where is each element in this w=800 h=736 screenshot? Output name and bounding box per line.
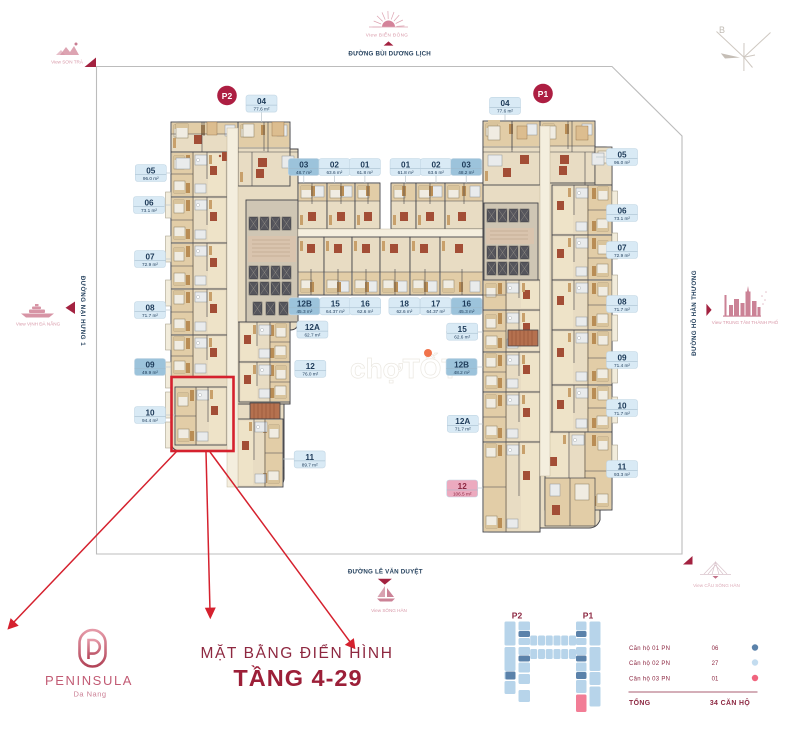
svg-text:TỔNG: TỔNG: [629, 698, 651, 707]
svg-text:04: 04: [500, 99, 510, 108]
svg-text:71.4 m²: 71.4 m²: [614, 363, 630, 368]
svg-text:04: 04: [257, 97, 267, 106]
svg-text:11: 11: [305, 453, 314, 462]
svg-text:Căn hộ 01 PN: Căn hộ 01 PN: [629, 646, 670, 652]
svg-text:11: 11: [618, 462, 627, 471]
svg-text:63.6 m²: 63.6 m²: [326, 170, 342, 175]
svg-text:17: 17: [431, 300, 441, 309]
svg-text:05: 05: [617, 150, 627, 159]
svg-text:View SƠN TRÀ: View SƠN TRÀ: [51, 59, 84, 65]
svg-text:12: 12: [306, 362, 316, 371]
svg-text:View SÔNG HÀN: View SÔNG HÀN: [371, 607, 407, 613]
svg-text:Căn hộ 02 PN: Căn hộ 02 PN: [629, 661, 670, 667]
svg-text:96.0 m²: 96.0 m²: [143, 176, 159, 181]
svg-text:ĐƯỜNG BÙI DƯƠNG LỊCH: ĐƯỜNG BÙI DƯƠNG LỊCH: [348, 50, 431, 58]
svg-text:71.7 m²: 71.7 m²: [455, 427, 471, 432]
svg-text:12: 12: [458, 482, 468, 491]
svg-text:Da Nang: Da Nang: [73, 690, 106, 699]
svg-text:08: 08: [145, 303, 155, 312]
svg-text:10: 10: [617, 401, 627, 410]
svg-text:73.1 m²: 73.1 m²: [614, 216, 630, 221]
svg-text:12B: 12B: [454, 360, 469, 369]
svg-text:63.6 m²: 63.6 m²: [428, 170, 444, 175]
svg-text:Căn hộ 03 PN: Căn hộ 03 PN: [629, 677, 670, 683]
svg-text:96.0 m²: 96.0 m²: [614, 160, 630, 165]
svg-text:71.7 m²: 71.7 m²: [142, 313, 158, 318]
svg-text:71.7 m²: 71.7 m²: [614, 411, 630, 416]
svg-text:01: 01: [712, 677, 719, 683]
svg-text:72.9 m²: 72.9 m²: [142, 262, 158, 267]
svg-text:93.3 m²: 93.3 m²: [614, 472, 630, 477]
svg-text:64.37 m²: 64.37 m²: [426, 309, 445, 314]
svg-text:05: 05: [146, 166, 156, 175]
svg-text:73.1 m²: 73.1 m²: [141, 208, 157, 213]
svg-text:ĐƯỜNG HỒ HÀN THƯƠNG: ĐƯỜNG HỒ HÀN THƯƠNG: [690, 270, 698, 356]
svg-text:06: 06: [144, 198, 154, 207]
svg-text:P2: P2: [512, 611, 523, 621]
svg-text:07: 07: [617, 243, 627, 252]
svg-text:View TRUNG TÂM THÀNH PHỐ: View TRUNG TÂM THÀNH PHỐ: [712, 319, 779, 325]
svg-text:62.6 m²: 62.6 m²: [454, 335, 470, 340]
svg-text:15: 15: [331, 300, 341, 309]
svg-text:12A: 12A: [305, 323, 320, 332]
svg-text:62.6 m²: 62.6 m²: [357, 309, 373, 314]
svg-text:PENINSULA: PENINSULA: [45, 673, 133, 688]
svg-text:49.9 m²: 49.9 m²: [142, 370, 158, 375]
svg-text:06: 06: [617, 206, 627, 215]
svg-text:48.2 m²: 48.2 m²: [458, 170, 474, 175]
svg-text:76.0 m²: 76.0 m²: [302, 372, 318, 377]
svg-text:View CẦU SÔNG HÀN: View CẦU SÔNG HÀN: [693, 582, 740, 588]
svg-text:94.4 m²: 94.4 m²: [142, 418, 158, 423]
svg-text:77.6 m²: 77.6 m²: [254, 107, 270, 112]
svg-text:18: 18: [400, 300, 410, 309]
svg-text:01: 01: [360, 160, 370, 169]
svg-text:chợTỐT: chợTỐT: [350, 352, 459, 384]
svg-text:62.7 m²: 62.7 m²: [304, 333, 320, 338]
svg-text:10: 10: [145, 408, 155, 417]
svg-text:ĐƯỜNG LÊ VĂN DUYỆT: ĐƯỜNG LÊ VĂN DUYỆT: [348, 568, 423, 576]
svg-text:16: 16: [361, 300, 371, 309]
svg-text:45.3 m²: 45.3 m²: [296, 309, 312, 314]
svg-text:09: 09: [145, 360, 155, 369]
svg-text:61.8 m²: 61.8 m²: [398, 170, 414, 175]
svg-text:View BIỂN ĐÔNG: View BIỂN ĐÔNG: [366, 32, 409, 38]
svg-text:03: 03: [299, 160, 309, 169]
svg-text:77.6 m²: 77.6 m²: [497, 109, 513, 114]
svg-text:P1: P1: [583, 611, 594, 621]
svg-text:12A: 12A: [455, 417, 470, 426]
svg-text:89.7 m²: 89.7 m²: [302, 462, 318, 467]
svg-text:106.5 m²: 106.5 m²: [453, 491, 472, 496]
svg-text:TẦNG 4-29: TẦNG 4-29: [233, 664, 362, 691]
svg-text:15: 15: [458, 325, 468, 334]
svg-text:16: 16: [462, 300, 472, 309]
svg-text:01: 01: [401, 160, 411, 169]
svg-text:02: 02: [330, 160, 340, 169]
svg-text:72.9 m²: 72.9 m²: [614, 253, 630, 258]
svg-text:07: 07: [145, 252, 155, 261]
svg-text:P1: P1: [538, 89, 549, 99]
svg-text:02: 02: [431, 160, 441, 169]
svg-text:71.7 m²: 71.7 m²: [614, 307, 630, 312]
svg-text:64.37 m²: 64.37 m²: [326, 309, 345, 314]
svg-text:08: 08: [617, 297, 627, 306]
svg-text:MẶT BẰNG ĐIỂN HÌNH: MẶT BẰNG ĐIỂN HÌNH: [200, 644, 393, 662]
svg-text:34 CĂN HỘ: 34 CĂN HỘ: [710, 698, 751, 707]
svg-text:09: 09: [617, 353, 627, 362]
svg-text:45.3 m²: 45.3 m²: [459, 309, 475, 314]
svg-text:B: B: [719, 25, 725, 35]
svg-text:48.7 m²: 48.7 m²: [296, 170, 312, 175]
svg-text:27: 27: [712, 661, 719, 667]
svg-text:03: 03: [462, 160, 472, 169]
svg-text:ĐƯỜNG NẠI HƯNG 1: ĐƯỜNG NẠI HƯNG 1: [79, 276, 87, 346]
svg-text:12B: 12B: [297, 300, 312, 309]
svg-text:View VỊNH ĐÀ NẴNG: View VỊNH ĐÀ NẴNG: [16, 321, 61, 327]
svg-text:48.2 m²: 48.2 m²: [454, 370, 470, 375]
svg-text:P2: P2: [222, 91, 233, 101]
svg-text:61.8 m²: 61.8 m²: [357, 170, 373, 175]
svg-text:06: 06: [712, 646, 719, 652]
svg-text:62.6 m²: 62.6 m²: [396, 309, 412, 314]
